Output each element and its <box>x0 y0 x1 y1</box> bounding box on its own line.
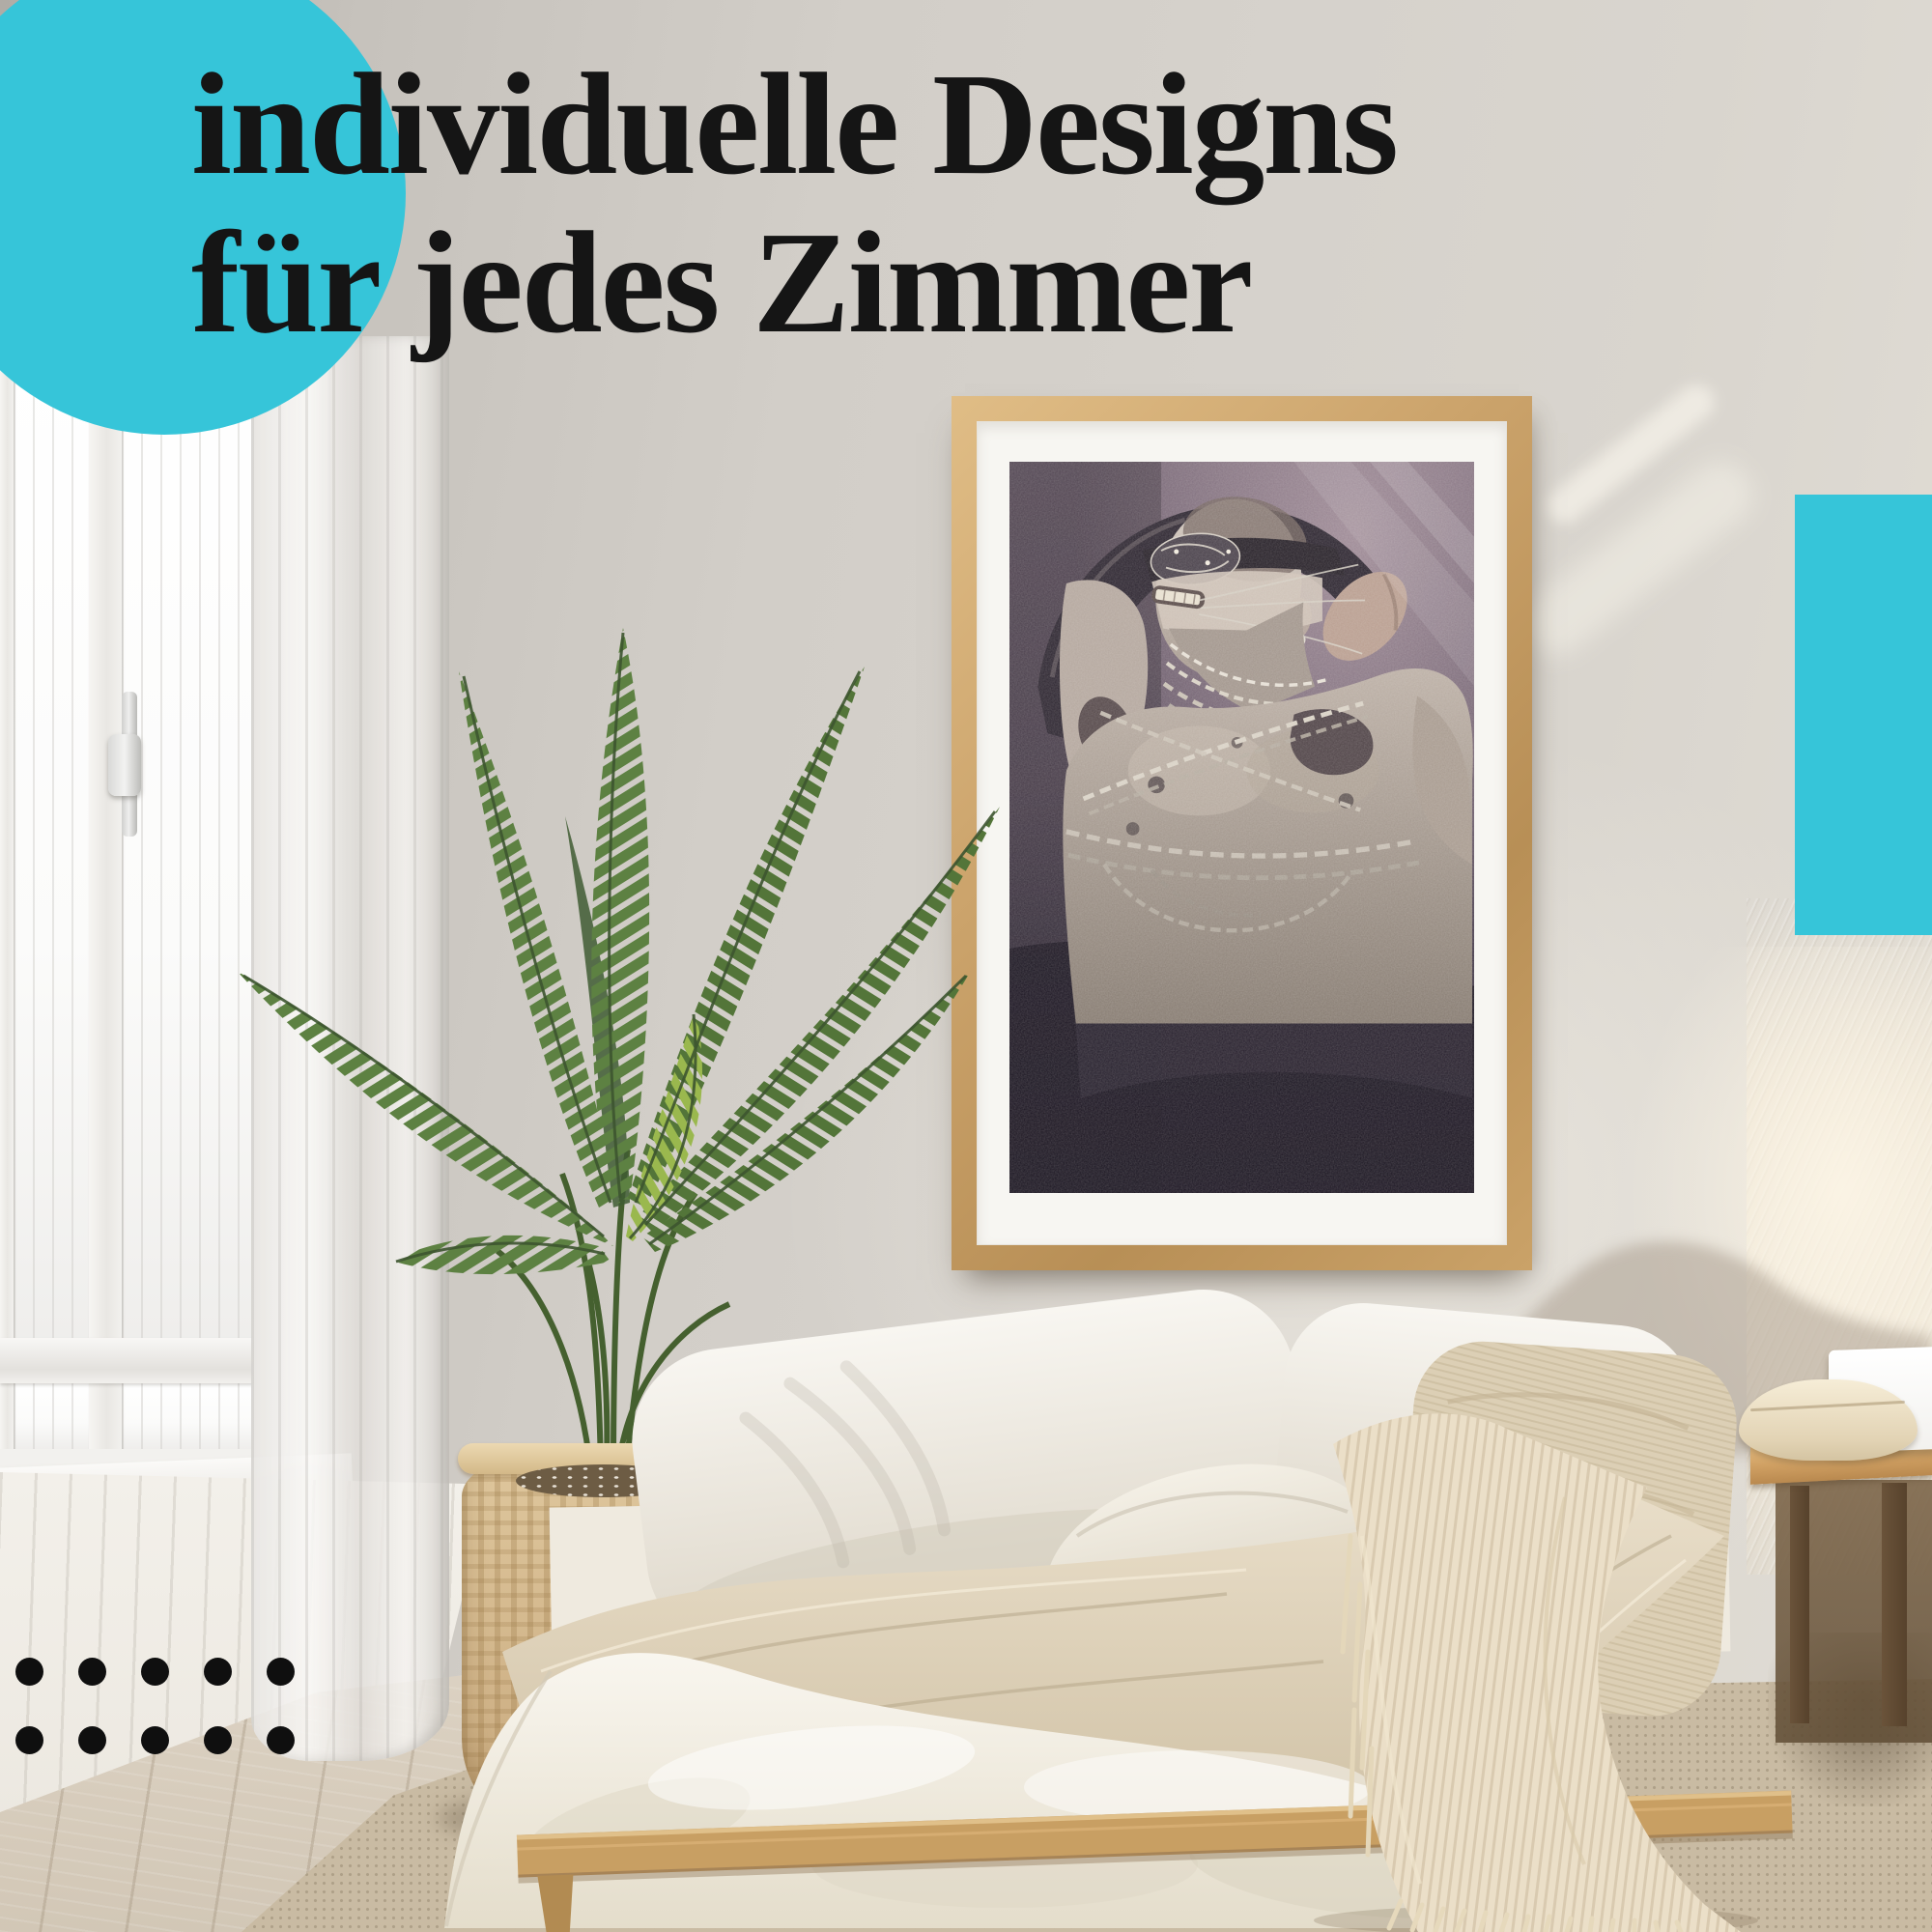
window-handle-grip <box>108 734 141 796</box>
dot-grid-pattern <box>15 1658 305 1756</box>
dot <box>267 1726 295 1754</box>
bed <box>135 1246 1932 1932</box>
poster-artwork <box>1009 462 1474 1193</box>
dot <box>141 1658 169 1686</box>
headline: individuelle Designs für jedes Zimmer <box>191 44 1660 361</box>
poster-art-svg <box>1009 462 1474 1193</box>
dot <box>78 1658 106 1686</box>
art-grain <box>1009 462 1474 1193</box>
headline-line-1: individuelle Designs <box>191 44 1660 203</box>
mockup-canvas: individuelle Designs für jedes Zimmer <box>0 0 1932 1932</box>
poster-mat <box>977 421 1507 1245</box>
dot <box>204 1658 232 1686</box>
dot <box>15 1658 43 1686</box>
window-pane <box>14 1383 89 1449</box>
dot <box>15 1726 43 1754</box>
window-mullion <box>89 336 122 1457</box>
window-pane <box>14 357 89 1338</box>
dot <box>204 1726 232 1754</box>
headline-line-2: für jedes Zimmer <box>191 203 1660 361</box>
dot <box>78 1726 106 1754</box>
accent-rectangle <box>1795 495 1932 935</box>
dot <box>267 1658 295 1686</box>
plant-fronds <box>237 628 1000 1274</box>
window-handle <box>104 692 149 837</box>
dot <box>141 1726 169 1754</box>
